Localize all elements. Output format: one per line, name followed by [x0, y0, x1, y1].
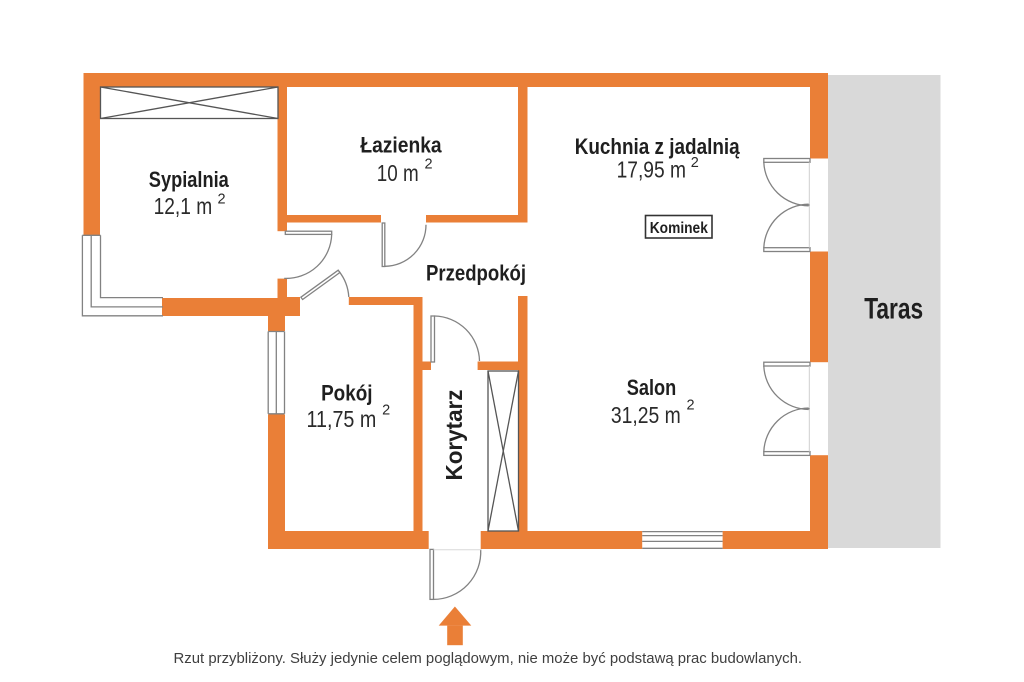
svg-text:Rzut przybliżony. Służy jedyni: Rzut przybliżony. Służy jedynie celem po… — [174, 651, 803, 667]
svg-text:2: 2 — [691, 155, 699, 171]
svg-text:Pokój: Pokój — [321, 381, 372, 406]
svg-text:31,25 m: 31,25 m — [611, 402, 681, 428]
svg-text:Kominek: Kominek — [650, 220, 708, 237]
svg-text:17,95 m: 17,95 m — [617, 157, 686, 183]
svg-text:Przedpokój: Przedpokój — [426, 261, 526, 286]
svg-text:11,75 m: 11,75 m — [307, 406, 377, 432]
svg-text:Sypialnia: Sypialnia — [149, 167, 230, 192]
svg-text:Korytarz: Korytarz — [441, 390, 467, 481]
svg-text:12,1 m: 12,1 m — [154, 193, 213, 219]
svg-text:2: 2 — [424, 157, 432, 173]
svg-text:Łazienka: Łazienka — [360, 133, 442, 158]
svg-text:Taras: Taras — [864, 293, 923, 326]
svg-text:Salon: Salon — [627, 375, 677, 400]
svg-text:2: 2 — [382, 403, 390, 419]
svg-text:2: 2 — [217, 192, 225, 208]
svg-text:10 m: 10 m — [377, 160, 419, 186]
svg-text:Kuchnia z jadalnią: Kuchnia z jadalnią — [575, 134, 741, 159]
svg-text:2: 2 — [687, 397, 695, 413]
